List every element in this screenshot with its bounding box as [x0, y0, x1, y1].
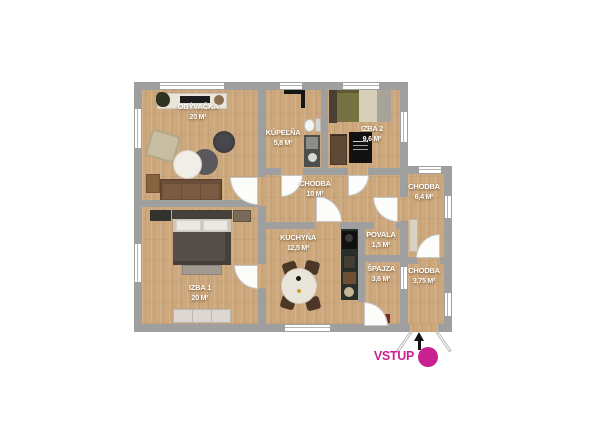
coffee-table — [173, 150, 202, 179]
room-name: OBÝVAČKA — [160, 102, 236, 113]
sofa-cushion — [201, 184, 219, 199]
table-decor — [296, 276, 301, 281]
washer-door-icon — [308, 153, 317, 162]
window — [444, 293, 452, 316]
room-name: KUCHYŇA — [260, 233, 336, 244]
wall — [396, 222, 400, 229]
sofa-cushion — [163, 184, 181, 199]
pouf — [213, 131, 235, 153]
nightstand — [233, 210, 251, 222]
entrance-label: VSTUP — [362, 349, 414, 363]
room-label-chodba375: CHODBA 3,75 M² — [386, 266, 462, 287]
room-label-chodba64: CHODBA 6,4 M² — [386, 182, 462, 203]
room-label-kupelna: KÚPEĽŇA 5,8 M² — [245, 128, 321, 149]
bed-bench — [182, 265, 222, 275]
room-name: POVALA — [343, 230, 419, 241]
room-label-obyvacka: OBÝVAČKA 20 M² — [160, 102, 236, 123]
room-area: 20 M² — [162, 294, 238, 305]
wall — [303, 168, 348, 175]
window — [134, 244, 142, 282]
wardrobe — [173, 309, 231, 323]
window — [419, 166, 441, 174]
shelf — [150, 210, 171, 221]
room-area: 3,75 M² — [386, 277, 462, 288]
wall — [142, 200, 258, 207]
room-label-izba1: IZBA 1 20 M² — [162, 283, 238, 304]
room-area: 20 M² — [160, 113, 236, 124]
room-name: CHODBA — [386, 266, 462, 277]
bed-blanket-gray — [377, 90, 391, 122]
table-decor-yellow — [297, 289, 301, 293]
room-area: 1,5 M² — [343, 241, 419, 252]
wall — [440, 257, 444, 264]
room-name: CHODBA — [277, 179, 353, 190]
room-name: IZBA 1 — [162, 283, 238, 294]
bed-blanket — [173, 232, 231, 265]
wardrobe-divider — [192, 309, 193, 323]
window — [134, 109, 142, 148]
room-label-povala: POVALA 1,5 M² — [343, 230, 419, 251]
room-label-kuchyna: KUCHYŇA 12,5 M² — [260, 233, 336, 254]
pillow — [203, 220, 228, 231]
sofa-side-table — [146, 174, 160, 193]
entrance-threshold — [410, 324, 438, 332]
room-name: KÚPEĽŇA — [245, 128, 321, 139]
rug-text — [353, 149, 368, 150]
bed-sheet — [359, 90, 377, 122]
wall — [408, 257, 418, 264]
wall — [266, 222, 315, 229]
room-area: 6,4 M² — [386, 193, 462, 204]
bed-blanket-olive — [337, 90, 359, 122]
bed-headboard — [329, 89, 337, 123]
window — [285, 324, 330, 332]
room-name: IZBA 2 — [334, 124, 410, 135]
wall — [266, 168, 281, 175]
entrance-door-leaf — [436, 331, 452, 352]
counter-bowl — [344, 287, 354, 297]
wall — [400, 289, 408, 324]
room-label-izba2: IZBA 2 9,6 M² — [334, 124, 410, 145]
dining-table — [281, 268, 317, 304]
window — [160, 82, 224, 90]
shower-corner — [301, 90, 305, 108]
pillow — [176, 220, 201, 231]
room-label-chodba10: CHODBA 10 M² — [277, 179, 353, 200]
entrance-dot — [418, 347, 438, 367]
wall — [321, 90, 328, 168]
room-name: CHODBA — [386, 182, 462, 193]
bed-headboard — [172, 210, 232, 219]
rug-text — [353, 145, 368, 146]
window — [280, 82, 302, 90]
wall — [258, 288, 266, 324]
room-area: 12,5 M² — [260, 244, 336, 255]
room-area: 9,6 M² — [334, 135, 410, 146]
window — [343, 82, 379, 90]
wall — [358, 255, 400, 262]
sofa-cushion — [182, 184, 200, 199]
room-area: 5,8 M² — [245, 139, 321, 150]
floor-plan: OBÝVAČKA 20 M² KÚPEĽŇA 5,8 M² IZBA 2 9,6… — [0, 0, 600, 426]
wardrobe-divider — [211, 309, 212, 323]
wall — [340, 222, 374, 229]
wall — [368, 168, 400, 175]
room-area: 10 M² — [277, 190, 353, 201]
